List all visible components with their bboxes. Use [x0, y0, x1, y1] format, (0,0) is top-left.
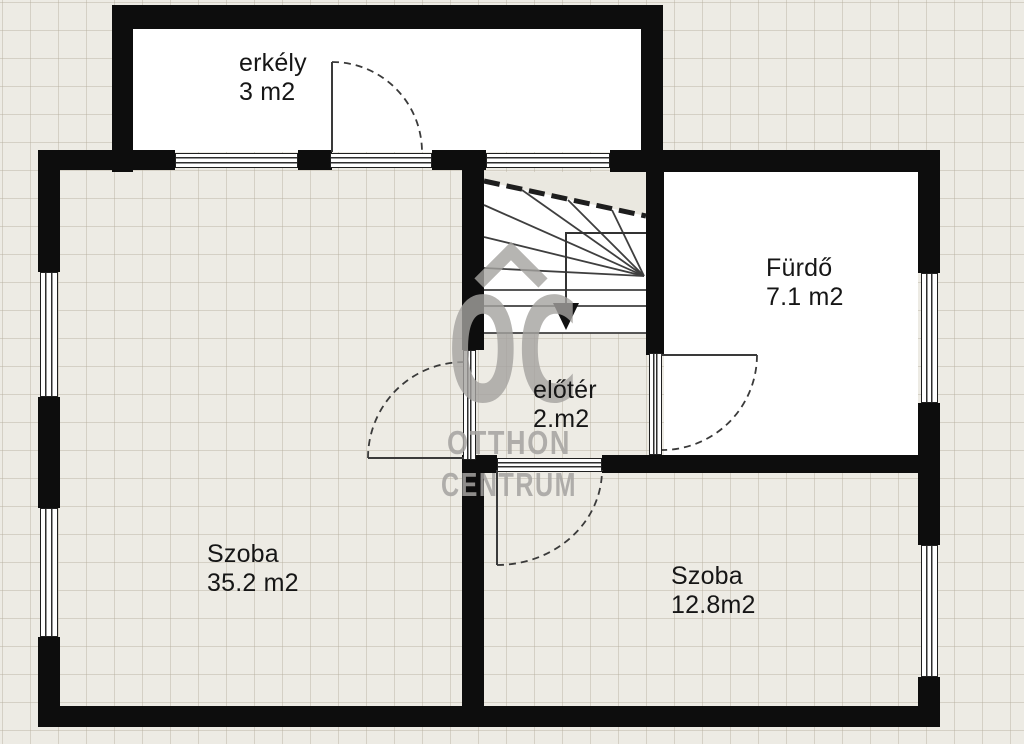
floor-plan: OC OTTHON CENTRUM erkély 3 m2 Fürdő 7.1 …	[0, 0, 1024, 744]
room-label-room-large: Szoba 35.2 m2	[207, 540, 299, 598]
room-name: Fürdő	[766, 254, 844, 283]
watermark-logo: OC	[0, 0, 1024, 744]
room-label-balcony: erkély 3 m2	[239, 49, 307, 107]
room-label-hall: előtér 2.m2	[533, 376, 597, 434]
room-label-room-small: Szoba 12.8m2	[671, 562, 756, 620]
room-area: 2.m2	[533, 405, 597, 434]
room-area: 3 m2	[239, 78, 307, 107]
watermark-word-centrum: CENTRUM	[441, 466, 577, 504]
room-name: előtér	[533, 376, 597, 405]
room-label-bathroom: Fürdő 7.1 m2	[766, 254, 844, 312]
room-area: 35.2 m2	[207, 569, 299, 598]
room-area: 7.1 m2	[766, 283, 844, 312]
room-area: 12.8m2	[671, 591, 756, 620]
room-name: Szoba	[671, 562, 756, 591]
room-name: erkély	[239, 49, 307, 78]
room-name: Szoba	[207, 540, 299, 569]
